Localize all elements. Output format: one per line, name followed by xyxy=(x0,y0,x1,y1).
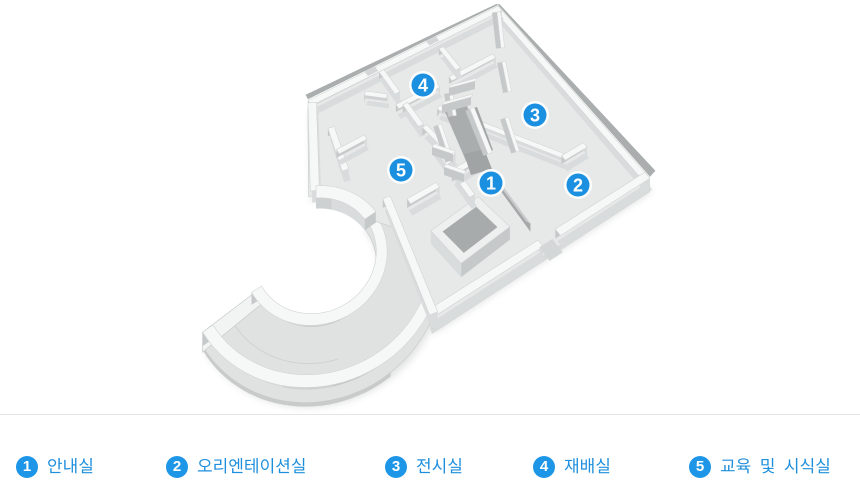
svg-text:3: 3 xyxy=(530,106,540,126)
svg-text:1: 1 xyxy=(486,174,496,194)
svg-text:2: 2 xyxy=(573,176,583,196)
svg-text:4: 4 xyxy=(418,76,428,96)
svg-text:5: 5 xyxy=(396,161,406,181)
